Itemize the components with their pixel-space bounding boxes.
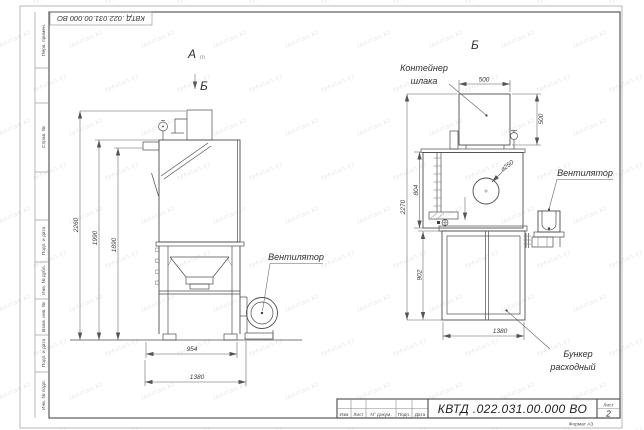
ladder xyxy=(434,153,442,212)
dim-954: 954 xyxy=(187,346,198,353)
hopper xyxy=(168,257,232,289)
doc-number: КВТД .022.031.00.000 ВО xyxy=(438,402,587,416)
right-view: Б Контейнер шлака ⌀250 xyxy=(400,38,613,372)
slag-container xyxy=(459,94,510,149)
chimney xyxy=(171,110,212,140)
side-ledge xyxy=(143,142,159,150)
bunker-label-line2: расходный xyxy=(549,362,595,372)
container-label-line2: шлака xyxy=(411,76,438,86)
side-label-podp-data-2: Подп. и дата xyxy=(41,339,47,368)
hood xyxy=(143,140,240,285)
side-label-vzam-inv: Взам. инв. № xyxy=(41,302,47,332)
dim-2270: 2270 xyxy=(400,199,407,215)
chimney-stub xyxy=(450,131,458,149)
side-label-sprav-n: Справ. № xyxy=(41,126,47,148)
dim-500-height: 500 xyxy=(538,113,545,124)
fan-left-view xyxy=(240,297,278,339)
col-list: Лист xyxy=(353,412,364,418)
side-label-inv-dubl: Инв. № дубл. xyxy=(41,265,47,295)
shelf-and-valve xyxy=(429,212,458,227)
sheet-number: 2 xyxy=(605,410,611,419)
sheet-border xyxy=(20,6,622,428)
top-stamp: КВТД .022.031.00.000 ВО xyxy=(50,12,152,25)
fan-right-view xyxy=(524,211,565,248)
dim-1380-left: 1380 xyxy=(190,374,205,381)
view-b-label: Б xyxy=(471,38,479,52)
container-label-line1: Контейнер xyxy=(400,63,448,73)
top-valve xyxy=(511,131,518,150)
title-block: Изм Лист N° докум. Подп. Дата КВТД .022.… xyxy=(337,399,620,428)
dim-500-width: 500 xyxy=(479,77,490,84)
col-podp: Подп. xyxy=(398,412,411,418)
top-stamp-text: КВТД .022.031.00.000 ВО xyxy=(57,14,145,23)
side-label-podp-data-1: Подп. и дата xyxy=(41,227,47,256)
left-view-dimensions: 2260 1990 1890 954 1380 xyxy=(73,111,246,386)
side-label-inv-podl: Инв. № подл. xyxy=(41,380,47,410)
view-a-label: А xyxy=(187,47,196,61)
bunker xyxy=(439,226,527,320)
dim-902: 902 xyxy=(417,269,424,280)
dim-804: 804 xyxy=(413,184,420,195)
view-a-label-sub: т xyxy=(200,55,205,61)
sheet-label: Лист xyxy=(603,403,614,409)
dim-2260: 2260 xyxy=(73,217,80,233)
drawing-frame: Перв. примен. Справ. № Подп. и дата Инв.… xyxy=(35,12,620,418)
fan-label-left: Вентилятор xyxy=(268,252,324,262)
side-label-perv-primen: Перв. примен. xyxy=(41,24,47,56)
hole-dia-label: ⌀250 xyxy=(499,159,515,174)
dim-1990: 1990 xyxy=(92,230,99,245)
drawing-sheet: Перв. примен. Справ. № Подп. и дата Инв.… xyxy=(0,0,644,430)
bunker-label-line1: Бункер xyxy=(563,349,592,359)
col-izm: Изм xyxy=(340,412,349,418)
dim-1380-right: 1380 xyxy=(493,328,508,335)
left-view: А т Б xyxy=(70,47,324,386)
col-n-dokum: N° докум. xyxy=(370,412,391,418)
dim-1890: 1890 xyxy=(111,237,118,252)
view-b-marker: Б xyxy=(200,79,208,93)
col-data: Дата xyxy=(415,412,426,418)
fan-label-right: Вентилятор xyxy=(557,168,613,178)
format-label: Формат А3 xyxy=(569,422,594,428)
valve-stem xyxy=(159,121,168,141)
